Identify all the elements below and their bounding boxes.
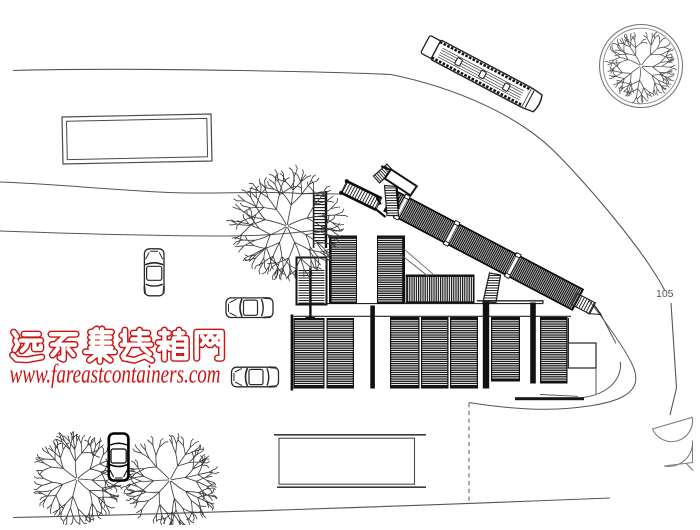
- svg-text:www.fareastcontainers.com: www.fareastcontainers.com: [10, 360, 221, 388]
- svg-text:105: 105: [656, 288, 674, 300]
